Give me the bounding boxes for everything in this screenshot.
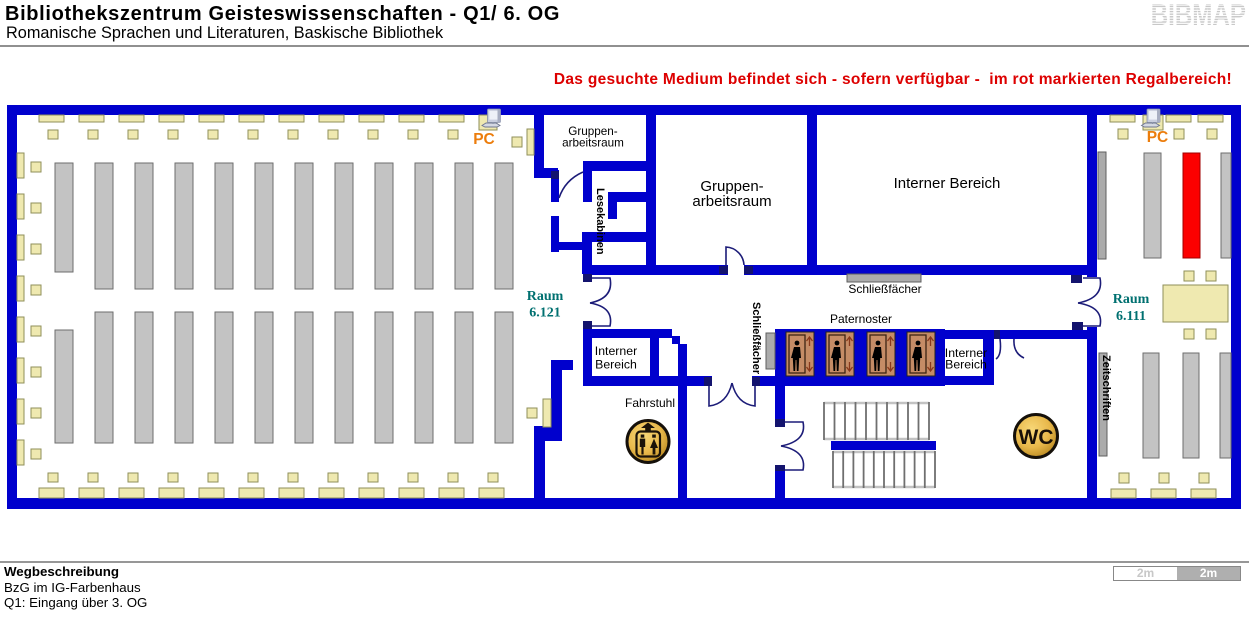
svg-text:WC: WC xyxy=(1019,426,1054,449)
svg-text:6.111: 6.111 xyxy=(1116,309,1146,324)
svg-text:Paternoster: Paternoster xyxy=(830,312,892,326)
svg-text:Schließfächer: Schließfächer xyxy=(750,302,762,375)
svg-text:Raum: Raum xyxy=(527,289,564,304)
svg-text:PC: PC xyxy=(473,131,495,148)
svg-text:PC: PC xyxy=(1147,129,1169,146)
svg-text:Fahrstuhl: Fahrstuhl xyxy=(625,396,675,410)
svg-text:Bereich: Bereich xyxy=(945,358,987,372)
svg-text:Schließfächer: Schließfächer xyxy=(848,282,921,296)
svg-text:arbeitsraum: arbeitsraum xyxy=(562,137,624,150)
svg-text:Interner: Interner xyxy=(595,344,637,358)
svg-text:6.121: 6.121 xyxy=(529,306,561,321)
svg-text:Zeitschriften: Zeitschriften xyxy=(1100,355,1112,421)
svg-text:arbeitsraum: arbeitsraum xyxy=(692,193,771,210)
svg-text:Interner Bereich: Interner Bereich xyxy=(894,175,1001,192)
svg-text:Bereich: Bereich xyxy=(595,358,637,372)
svg-text:Raum: Raum xyxy=(1113,292,1150,307)
svg-text:Lesekabinen: Lesekabinen xyxy=(594,188,606,255)
